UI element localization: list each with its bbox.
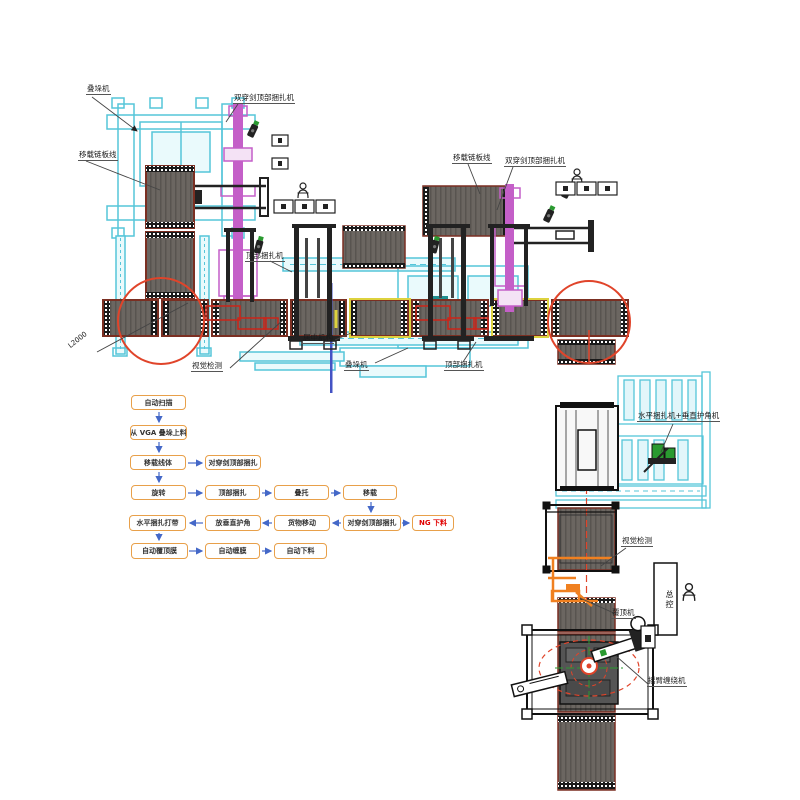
- flow-step-vga-loading: 从 VGA 叠垛上料: [130, 425, 187, 440]
- flow-step-ng-unload: NG 下料: [412, 515, 454, 531]
- flow-step-transfer: 移载: [343, 485, 397, 500]
- label-transfer-chain-left: 移载链板线: [78, 150, 118, 161]
- label-double-sword-strapping-left: 双穿剑顶部捆扎机: [233, 93, 295, 104]
- label-arm-wrapping-machine: 摇臂缠绕机: [647, 676, 687, 687]
- label-vision-inspection-left: 视觉检测: [191, 361, 223, 372]
- flow-step-auto-scan: 自动扫描: [131, 395, 186, 410]
- control-boxes-small: [272, 135, 288, 169]
- label-transfer-chain-right: 移载链板线: [452, 153, 492, 164]
- label-stacker-middle: 叠垛机: [344, 360, 369, 371]
- flow-step-transfer-line: 移载线体: [130, 455, 186, 470]
- flow-step-rotate: 旋转: [131, 485, 186, 500]
- flow-step-stack-tray: 叠托: [274, 485, 329, 500]
- horizontal-strapping-machine-body: [556, 402, 618, 491]
- label-centering-mechanism: 居中机构: [302, 333, 334, 344]
- top-middle-buffer-block: [343, 226, 405, 268]
- flow-step-auto-top-film: 自动覆顶膜: [131, 543, 188, 559]
- flow-step-sword-top-strapping-1: 对穿剑顶部捆扎: [205, 455, 261, 470]
- flow-step-sword-top-strapping-2: 对穿剑顶部捆扎: [343, 515, 401, 531]
- flow-step-horizontal-strapping: 水平捆扎打带: [129, 515, 186, 531]
- label-top-film-machine: 覆顶机: [611, 608, 636, 619]
- flow-step-corner-protectors: 放垂直护角: [205, 515, 261, 531]
- layout-drawing: 叠垛机 移载链板线 双穿剑顶部捆扎机 移载链板线 双穿剑顶部捆扎机 顶部捆扎机 …: [0, 0, 800, 800]
- flow-step-auto-wrap-film: 自动缠膜: [205, 543, 260, 559]
- flow-step-top-strapping: 顶部捆扎: [205, 485, 260, 500]
- label-stacker-top-left: 叠垛机: [86, 84, 111, 95]
- flow-step-auto-unload: 自动下料: [274, 543, 327, 559]
- label-horizontal-strapping-corner: 水平捆扎机+垂直护角机: [637, 411, 720, 422]
- label-top-strapping-left: 顶部捆扎机: [245, 251, 285, 262]
- label-double-sword-strapping-right: 双穿剑顶部捆扎机: [504, 156, 566, 167]
- label-master-control: 总控: [656, 568, 675, 632]
- label-vision-inspection-right: 视觉检测: [621, 536, 653, 547]
- label-top-strapping-right: 顶部捆扎机: [444, 360, 484, 371]
- flow-step-cargo-move: 货物移动: [274, 515, 330, 531]
- arm-wrapping-machine-drawing: [511, 615, 658, 719]
